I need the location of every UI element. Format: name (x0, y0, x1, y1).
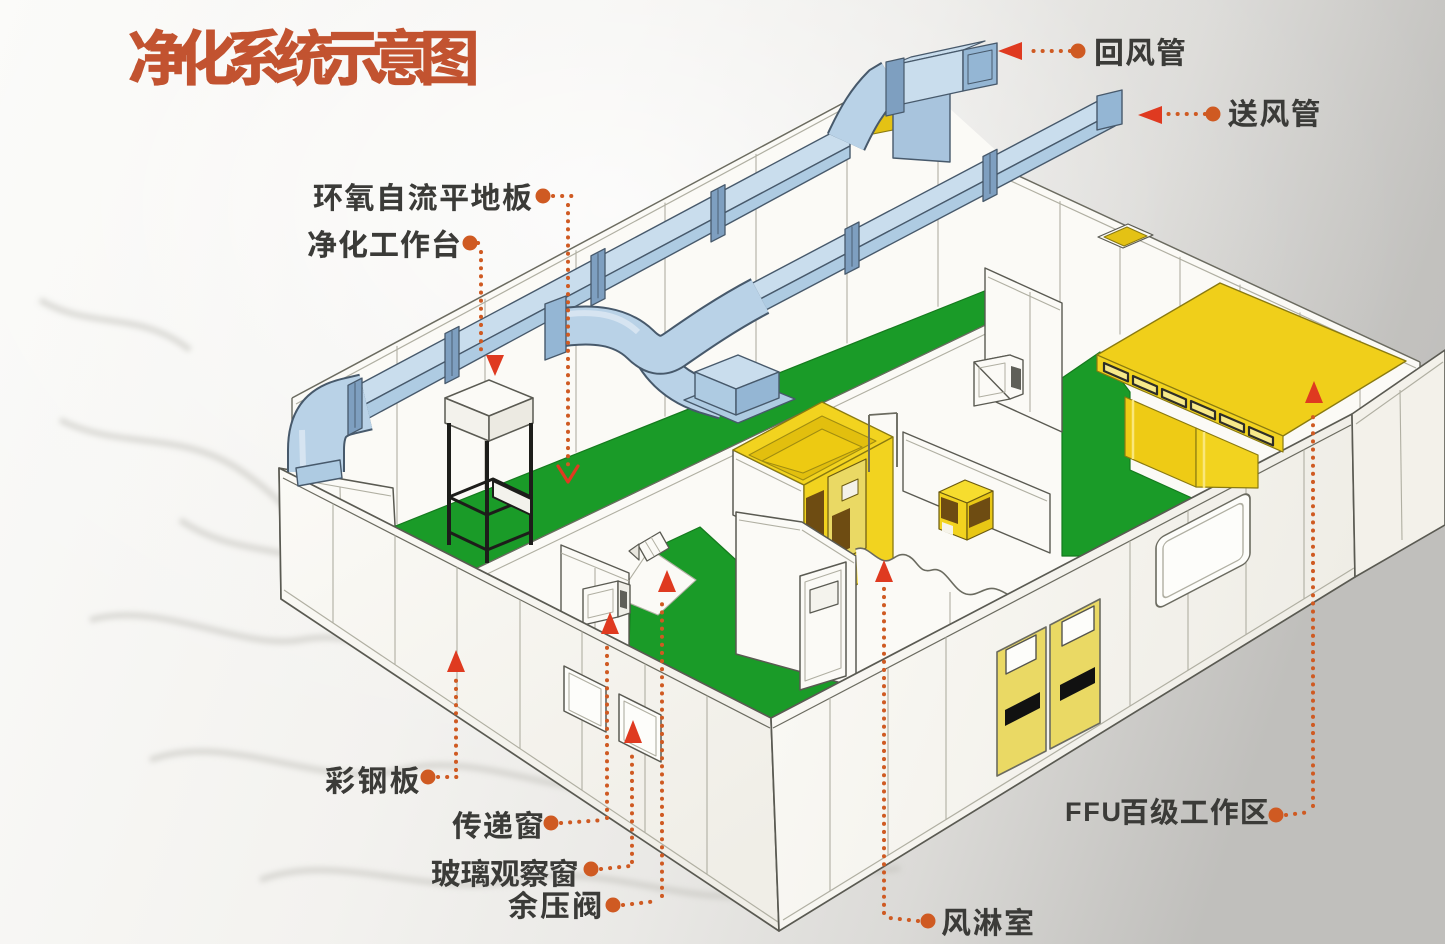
svg-text:F: F (1065, 797, 1082, 827)
svg-text:F: F (1083, 797, 1100, 827)
svg-text:U: U (1102, 797, 1122, 827)
